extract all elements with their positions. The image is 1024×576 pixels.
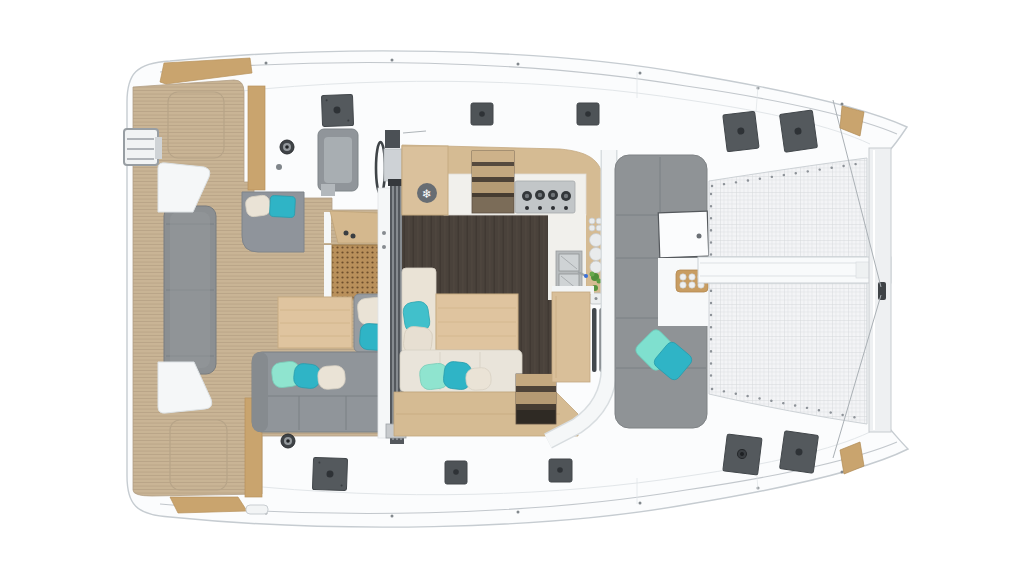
hatch-large (312, 457, 347, 490)
hatch-large (723, 111, 759, 152)
switch-dot (595, 297, 598, 300)
forward-crossbeam (869, 148, 891, 432)
companionway-stairs-starboard (516, 374, 556, 424)
bowsprit-beam (698, 257, 891, 283)
dinette-table (436, 294, 518, 350)
hatch-large (780, 110, 818, 152)
swim-ladder (124, 129, 162, 165)
winch-bottom (281, 434, 295, 448)
hatch-large (780, 431, 819, 473)
cockpit-aft-facing-sofa (318, 129, 358, 196)
dinette-aft-bench (400, 350, 522, 392)
hatch-large (321, 94, 353, 126)
hatch-large (723, 434, 762, 475)
catamaran-floorplan: ❄ (0, 0, 1024, 576)
starboard-cabinet (552, 286, 594, 382)
fridge-freezer: ❄ (402, 146, 448, 215)
forward-lounge (615, 155, 709, 428)
sidedeck-wood-strip-top (248, 86, 265, 190)
floorplan-canvas: ❄ (0, 0, 1024, 576)
vent-grab-rail-1 (592, 308, 597, 372)
cane-cabinet (324, 245, 378, 299)
companionway-stairs-port (472, 151, 514, 213)
snowflake-icon: ❄ (422, 187, 432, 201)
cockpit-table (278, 297, 352, 348)
stove (515, 181, 575, 213)
cockpit-aft-sofa (252, 352, 392, 432)
lounge-hatch-table (658, 211, 709, 258)
dinette-side-bench (402, 268, 436, 355)
stern-bench-sofa (164, 206, 216, 374)
helm-seat (242, 192, 304, 252)
stern-step-strip-bottom (170, 497, 247, 513)
stern-cleat (246, 505, 268, 514)
